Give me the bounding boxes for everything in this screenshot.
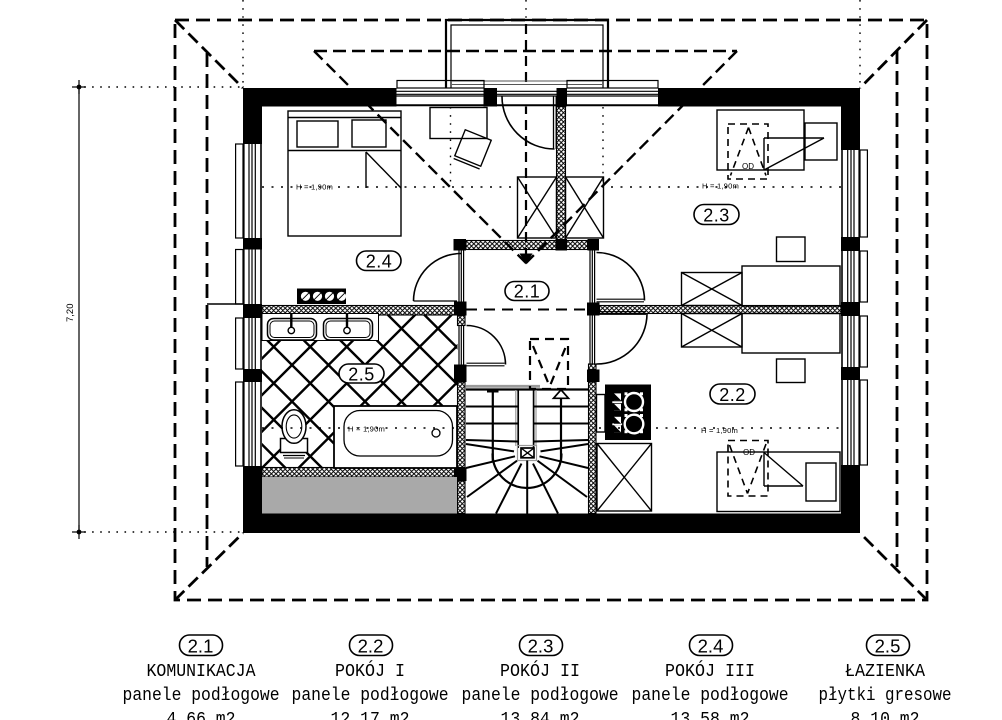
svg-text:2.4: 2.4 xyxy=(698,636,724,657)
svg-text:panele podłogowe: panele podłogowe xyxy=(292,686,449,706)
svg-text:panele podłogowe: panele podłogowe xyxy=(632,686,789,706)
svg-text:2.5: 2.5 xyxy=(875,636,901,657)
svg-text:2.3: 2.3 xyxy=(703,206,730,226)
svg-text:2.1: 2.1 xyxy=(514,282,541,302)
svg-text:płytki gresowe: płytki gresowe xyxy=(819,686,952,706)
svg-text:OD: OD xyxy=(742,162,754,171)
svg-text:2.3: 2.3 xyxy=(528,636,554,657)
svg-text:8,10 m2: 8,10 m2 xyxy=(851,710,920,720)
svg-text:7,20: 7,20 xyxy=(65,304,76,323)
svg-text:ŁAZIENKA: ŁAZIENKA xyxy=(845,662,925,682)
svg-text:2.1: 2.1 xyxy=(188,636,214,657)
svg-text:2.4: 2.4 xyxy=(366,252,393,272)
svg-text:POKÓJ II: POKÓJ II xyxy=(500,660,580,682)
svg-text:2.2: 2.2 xyxy=(358,636,384,657)
svg-text:13,58 m2: 13,58 m2 xyxy=(671,710,750,720)
svg-text:KOMUNIKACJA: KOMUNIKACJA xyxy=(147,662,256,682)
svg-text:4,66 m2: 4,66 m2 xyxy=(167,710,236,720)
svg-text:2.2: 2.2 xyxy=(719,385,746,405)
svg-text:POKÓJ I: POKÓJ I xyxy=(335,660,405,682)
svg-text:13,84 m2: 13,84 m2 xyxy=(501,710,580,720)
svg-text:OD: OD xyxy=(743,448,755,457)
svg-text:H = 1,90m: H = 1,90m xyxy=(348,425,385,434)
svg-text:panele podłogowe: panele podłogowe xyxy=(123,686,280,706)
svg-text:POKÓJ III: POKÓJ III xyxy=(665,660,755,682)
svg-text:H = 1,90m: H = 1,90m xyxy=(296,183,333,192)
svg-text:H = 1,90m: H = 1,90m xyxy=(701,426,738,435)
svg-text:H = 1,90m: H = 1,90m xyxy=(702,182,739,191)
svg-text:2.5: 2.5 xyxy=(348,365,375,385)
svg-text:panele podłogowe: panele podłogowe xyxy=(462,686,619,706)
svg-text:12,17 m2: 12,17 m2 xyxy=(331,710,410,720)
